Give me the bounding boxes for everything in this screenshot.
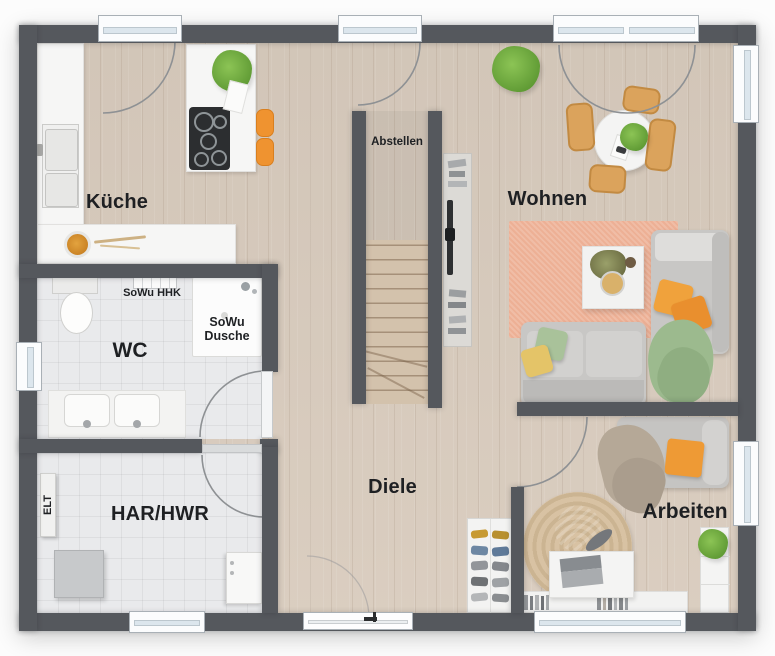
decor-vase xyxy=(625,257,636,268)
window-glass xyxy=(343,27,417,34)
burner xyxy=(213,115,227,129)
staircase xyxy=(366,240,428,404)
room-label-arbeiten: Arbeiten xyxy=(640,501,730,524)
wall-wohnen-arbeiten xyxy=(517,402,738,416)
book xyxy=(524,595,528,610)
book-stack xyxy=(449,315,466,323)
book xyxy=(530,596,533,610)
book xyxy=(541,596,544,610)
window-wohnen-french-doors xyxy=(553,15,699,42)
shoe-pair xyxy=(471,560,489,570)
cabinet-shelf-line xyxy=(701,584,730,585)
basin-faucet xyxy=(83,420,91,428)
daybed-bolster xyxy=(702,420,727,485)
elt-cabinet: ELT xyxy=(40,473,56,537)
wall-stairs-left xyxy=(352,111,366,404)
kitchen-sink xyxy=(42,124,79,208)
shower-knob xyxy=(252,289,257,294)
window-har-bottom xyxy=(129,611,205,633)
book-stack xyxy=(449,171,465,177)
bar-stool xyxy=(256,109,274,137)
abstellen-floor xyxy=(366,111,428,240)
dining-chair xyxy=(565,102,595,152)
room-label-wohnen: Wohnen xyxy=(505,189,590,211)
shower-faucet xyxy=(241,282,250,291)
washing-machine xyxy=(226,552,262,604)
floor-plan: ELT xyxy=(0,0,775,656)
wc-door-leaf xyxy=(261,371,273,438)
window-wohnen-right xyxy=(733,45,759,123)
room-label-wc: WC xyxy=(105,340,155,363)
window-glass xyxy=(558,27,624,34)
sink-faucet xyxy=(36,144,43,156)
shoe-pair xyxy=(492,593,510,602)
annotation-sowu-dusche-line2: Dusche xyxy=(192,330,262,344)
wall-wc-har xyxy=(19,439,202,453)
shoe-pair xyxy=(471,592,489,601)
chaise-armrest xyxy=(712,232,729,352)
book xyxy=(614,596,617,610)
annotation-sowu-dusche-line1: SoWu xyxy=(192,316,262,330)
book-stack xyxy=(449,289,467,297)
entry-door-panel xyxy=(308,620,408,624)
corner-plant xyxy=(492,46,540,92)
wall-wc-diele xyxy=(262,264,278,372)
window-glass xyxy=(27,347,34,388)
book-stack xyxy=(448,159,467,168)
har-door-leaf xyxy=(202,444,262,453)
book-stack xyxy=(448,181,467,187)
burner xyxy=(211,150,227,166)
sink-basin xyxy=(45,173,78,207)
annotation-sowu-dusche: SoWu Dusche xyxy=(192,316,262,343)
wall-diele-arbeiten xyxy=(511,487,524,613)
annotation-sowu-hhk: SoWu HHK xyxy=(122,288,182,300)
appliance-knob xyxy=(230,561,234,565)
shoe-pair xyxy=(492,546,510,556)
window-glass xyxy=(539,620,681,626)
wall-stairs-right xyxy=(428,111,442,408)
sofa-cushion xyxy=(586,331,642,377)
utility-unit xyxy=(54,550,104,598)
tv-mount xyxy=(445,228,455,241)
appliance-knob xyxy=(230,571,234,575)
exterior-wall-left xyxy=(19,25,37,631)
table-plant xyxy=(620,123,648,151)
cooktop xyxy=(189,107,230,170)
room-label-abstellen: Abstellen xyxy=(366,136,428,148)
shoe-pair xyxy=(471,577,488,587)
wall-kitchen-wc xyxy=(19,264,278,278)
book-stack xyxy=(448,328,466,334)
window-kitchen-terrace-door xyxy=(98,15,182,42)
shoe-pair xyxy=(471,529,489,539)
book xyxy=(535,595,539,610)
room-label-diele: Diele xyxy=(355,477,430,499)
window-wc-left xyxy=(16,342,42,391)
window-arbeiten-bottom xyxy=(534,611,686,633)
basin-faucet xyxy=(133,420,141,428)
window-arbeiten-right xyxy=(733,441,759,526)
room-label-har-hwr: HAR/HWR xyxy=(95,504,225,526)
window-glass xyxy=(134,620,200,626)
fruit-bowl xyxy=(64,231,91,258)
dining-chair xyxy=(621,85,661,116)
decor-bowl xyxy=(600,271,625,296)
shoe-cabinet xyxy=(467,518,513,613)
entry-door-handle xyxy=(373,612,376,622)
shoe-cabinet-divider xyxy=(490,519,491,614)
window-glass xyxy=(103,27,177,34)
sofa-back xyxy=(523,380,644,404)
book xyxy=(625,596,628,610)
shoe-pair xyxy=(492,577,510,587)
shoe-pair xyxy=(492,561,510,572)
dining-chair xyxy=(588,164,627,195)
burner xyxy=(194,112,214,132)
entry-door xyxy=(303,612,413,630)
window-abstellen-door xyxy=(338,15,422,42)
shoe-pair xyxy=(471,545,489,555)
daybed-orange-pillow xyxy=(664,438,705,478)
window-glass xyxy=(629,27,695,34)
elt-label: ELT xyxy=(42,495,54,515)
bar-stool xyxy=(256,138,274,166)
wall-har-diele xyxy=(262,447,278,613)
book-stack xyxy=(448,302,466,308)
book xyxy=(603,596,606,610)
shoe-pair xyxy=(492,530,510,539)
toilet-bowl xyxy=(60,292,93,334)
cabinet-plant xyxy=(698,529,728,559)
sink-basin xyxy=(45,129,78,171)
window-glass xyxy=(744,50,751,120)
burner xyxy=(194,152,209,167)
room-label-kueche: Küche xyxy=(82,192,152,214)
window-glass xyxy=(744,446,751,523)
burner xyxy=(200,133,217,150)
laptop xyxy=(560,555,604,588)
